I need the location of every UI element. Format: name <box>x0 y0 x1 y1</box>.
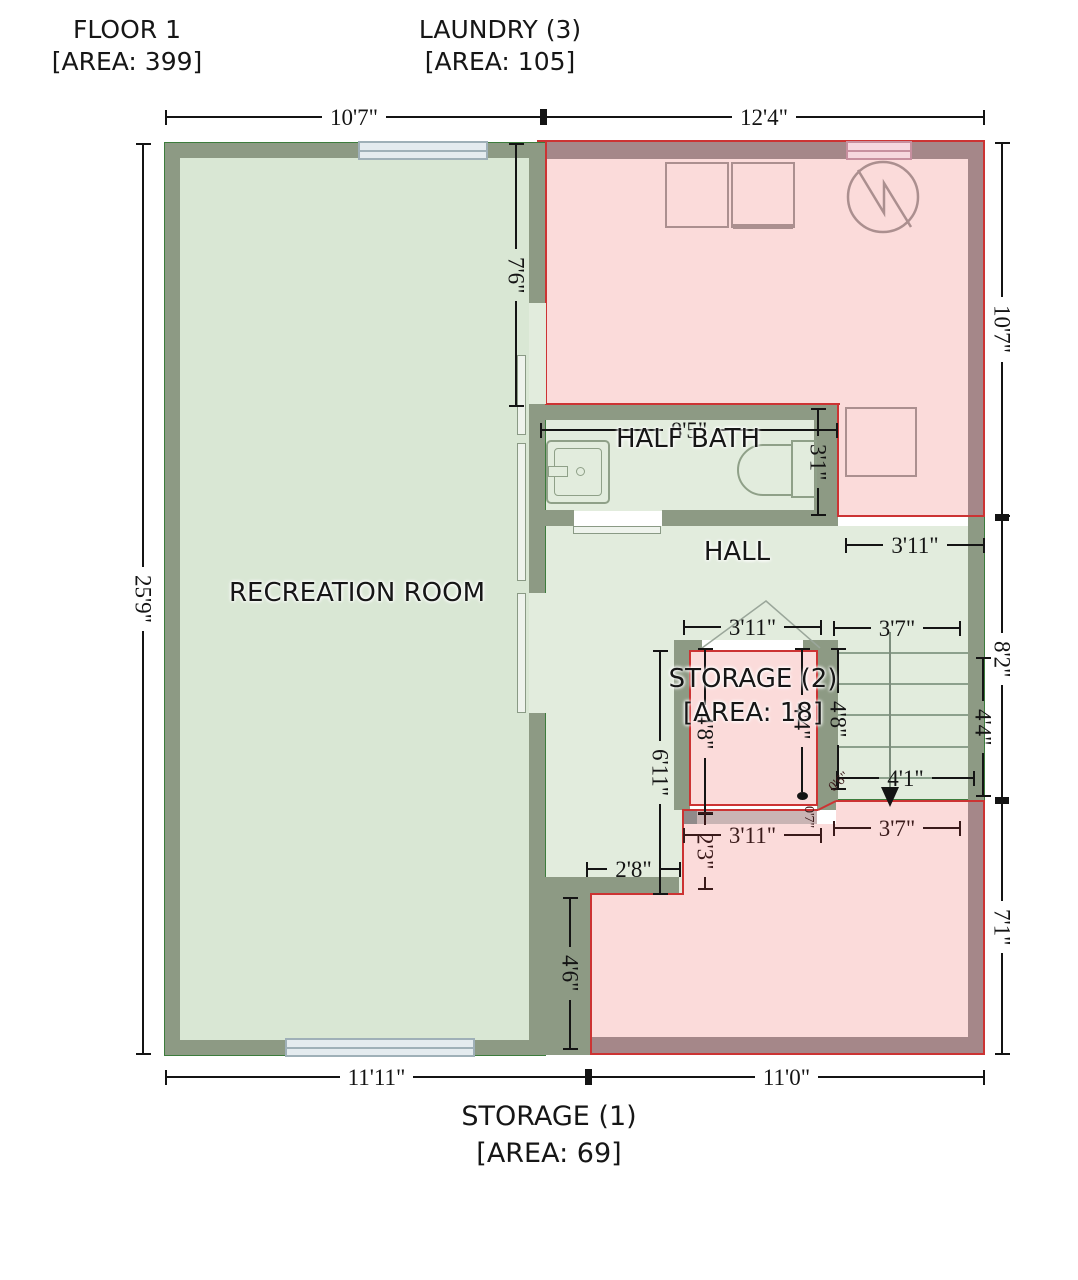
laundry-title: LAUNDRY (3) [AREA: 105] <box>400 14 600 78</box>
dim-stairs-run: 4'1" <box>836 767 975 789</box>
floor-title-area: [AREA: 399] <box>27 46 227 78</box>
dim-label: 4'4" <box>972 701 995 754</box>
stair-direction-line <box>889 632 891 788</box>
recreation-window-top <box>358 141 488 160</box>
storage1-label-area: [AREA: 69] <box>399 1135 699 1172</box>
dim-label: 6'11" <box>649 741 672 804</box>
dim-bottom-right: 11'0" <box>588 1066 985 1088</box>
storage1-outline-bottom <box>590 1053 985 1055</box>
dim-stairs-top: 3'7" <box>833 617 961 639</box>
laundry-window <box>846 141 912 160</box>
storage1-floor-main <box>591 894 968 1037</box>
dim-right-bottom: 7'1" <box>991 801 1013 1055</box>
dim-storage1-top: 3'7" <box>833 817 961 839</box>
dryer-icon <box>731 162 795 228</box>
recreation-room-label: RECREATION ROOM <box>157 578 557 608</box>
dim-label: 7'1" <box>991 901 1014 954</box>
dim-label: 10'7" <box>991 297 1014 361</box>
dim-bottom-left: 11'11" <box>165 1066 588 1088</box>
pocket-door-leaf <box>517 443 526 581</box>
stair-tread <box>838 746 968 748</box>
dim-storage2-top: 3'11" <box>683 616 822 638</box>
laundry-tub-icon <box>845 407 917 477</box>
hall-label: HALL <box>662 537 812 567</box>
stairs-outline-bottom <box>838 799 968 800</box>
dim-label: 3'11" <box>721 616 784 639</box>
storage1-outline-step <box>682 810 684 895</box>
sink-handle <box>548 466 568 477</box>
storage2-label-area: [AREA: 18] <box>653 696 853 730</box>
hall-door-opening <box>529 593 546 713</box>
storage2-label: STORAGE (2) [AREA: 18] <box>653 662 853 730</box>
hall-door-leaf <box>517 593 526 713</box>
storage1-outline-topright <box>836 800 984 802</box>
stair-tread <box>838 714 968 716</box>
dim-rec-corner: 4'6" <box>559 897 581 1050</box>
dim-label: 3'7" <box>871 817 924 840</box>
dim-label: 11'11" <box>340 1066 414 1089</box>
laundry-ext-outline-bottom <box>837 515 984 517</box>
storage1-label: STORAGE (1) [AREA: 69] <box>399 1098 699 1172</box>
floor-plan-canvas: FLOOR 1 [AREA: 399] LAUNDRY (3) [AREA: 1… <box>0 0 1078 1280</box>
laundry-door-opening <box>529 303 546 404</box>
laundry-outline-bottom <box>545 403 840 405</box>
sink-drain <box>576 467 585 476</box>
laundry-title-name: LAUNDRY (3) <box>400 14 600 46</box>
storage1-label-name: STORAGE (1) <box>399 1098 699 1135</box>
storage1-outline-left <box>590 893 592 1055</box>
dim-shared-tick <box>995 514 1009 521</box>
dim-label: 4'6" <box>559 947 582 1000</box>
laundry-outline-top <box>537 140 985 142</box>
window-mullion <box>848 150 910 152</box>
stair-tread <box>838 683 968 685</box>
laundry-title-area: [AREA: 105] <box>400 46 600 78</box>
dim-right-mid: 8'2" <box>991 517 1013 801</box>
window-mullion <box>287 1047 473 1049</box>
dim-bath-depth: 3'1" <box>807 408 829 516</box>
laundry-outline-right <box>983 140 985 517</box>
half-bath-wall-bottom-left <box>529 510 574 526</box>
dim-dot-end <box>797 792 808 800</box>
dim-tiny-b: 0'7" <box>800 806 816 828</box>
dim-left-side: 25'9" <box>132 143 154 1055</box>
dim-label: 25'9" <box>132 567 155 631</box>
storage1-outline-right <box>983 800 985 1055</box>
dim-label: 3'11" <box>883 534 946 557</box>
dim-label: 2'3" <box>694 825 717 878</box>
dim-label: 10'7" <box>322 106 386 129</box>
laundry-wall-top <box>546 142 985 159</box>
dim-label: 3'7" <box>871 617 924 640</box>
recreation-window-bottom <box>285 1038 475 1057</box>
dim-shared-tick <box>540 109 547 125</box>
floor-title-name: FLOOR 1 <box>27 14 227 46</box>
bath-door-leaf <box>573 526 661 534</box>
dim-laundry-wall: 7'6" <box>505 143 527 407</box>
dim-label: 12'4" <box>732 106 796 129</box>
dim-right-top: 10'7" <box>991 142 1013 517</box>
dim-label: 7'6" <box>505 249 528 302</box>
stair-tread <box>838 652 968 654</box>
storage2-label-name: STORAGE (2) <box>653 662 853 696</box>
dim-shared-tick <box>585 1069 592 1085</box>
dim-label: 4'1" <box>879 767 932 790</box>
dim-label: 11'0" <box>755 1066 818 1089</box>
half-bath-label: HALF BATH <box>588 424 788 454</box>
dim-label: 3'1" <box>807 436 830 489</box>
dim-label: 3'11" <box>721 824 784 847</box>
washer-icon <box>665 162 729 228</box>
dim-top-left: 10'7" <box>165 106 543 128</box>
dryer-base <box>733 224 793 229</box>
window-mullion <box>360 150 486 152</box>
dim-top-right: 12'4" <box>543 106 985 128</box>
floor-title: FLOOR 1 [AREA: 399] <box>27 14 227 78</box>
dim-right-inner: 4'4" <box>972 657 994 797</box>
dim-wall-seg: 2'3" <box>694 812 716 890</box>
dim-hall-right: 3'11" <box>845 534 985 556</box>
